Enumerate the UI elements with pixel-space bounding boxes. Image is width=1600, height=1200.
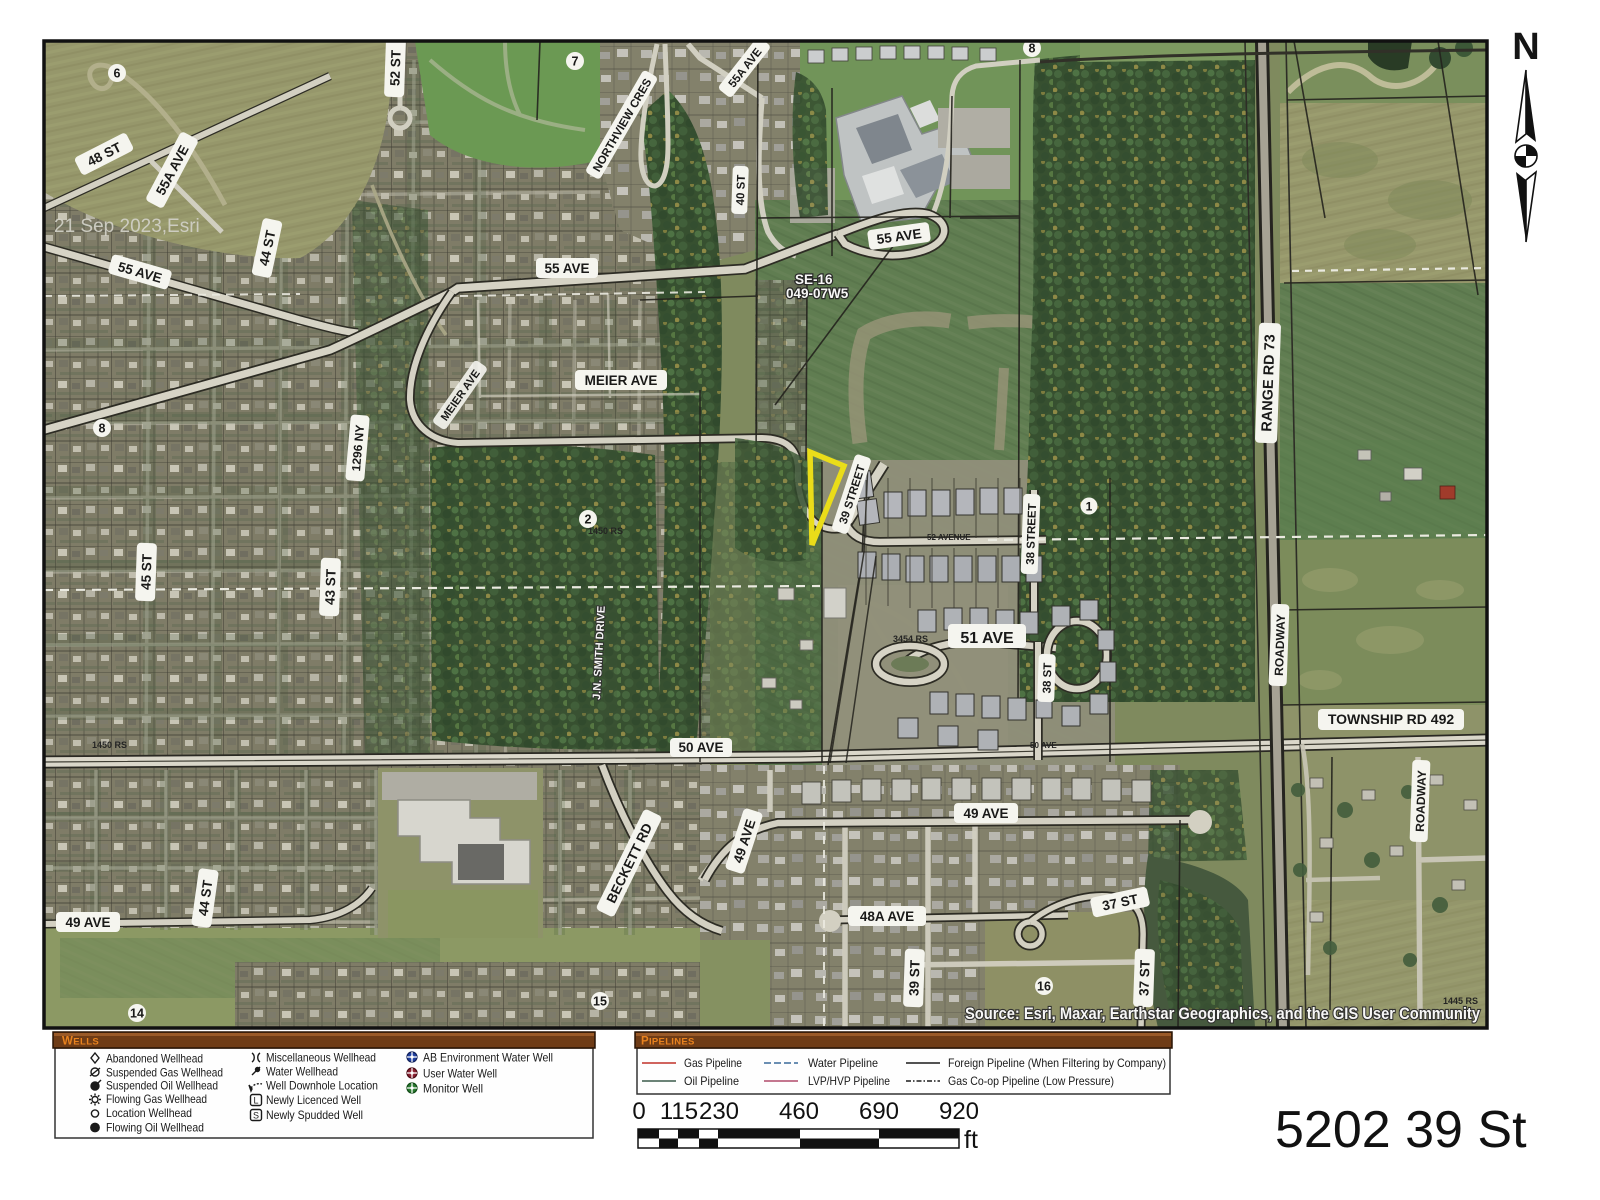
svg-text:Monitor Well: Monitor Well	[423, 1082, 483, 1096]
svg-text:Abandoned Wellhead: Abandoned Wellhead	[106, 1052, 203, 1066]
svg-text:Suspended Gas Wellhead: Suspended Gas Wellhead	[106, 1066, 223, 1080]
svg-text:230: 230	[699, 1098, 739, 1125]
svg-text:Location Wellhead: Location Wellhead	[106, 1106, 192, 1120]
svg-text:Flowing Gas Wellhead: Flowing Gas Wellhead	[106, 1092, 207, 1106]
svg-text:User Water Well: User Water Well	[423, 1067, 497, 1081]
svg-text:Water Pipeline: Water Pipeline	[808, 1056, 878, 1070]
svg-text:690: 690	[859, 1098, 899, 1125]
svg-text:Suspended Oil Wellhead: Suspended Oil Wellhead	[106, 1079, 218, 1093]
svg-text:5202 39 St: 5202 39 St	[1275, 1101, 1527, 1159]
svg-text:N: N	[1512, 26, 1539, 68]
svg-text:Gas Co-op Pipeline (Low Pressu: Gas Co-op Pipeline (Low Pressure)	[948, 1074, 1114, 1088]
svg-text:S: S	[253, 1111, 259, 1121]
svg-text:Oil Pipeline: Oil Pipeline	[684, 1074, 739, 1088]
svg-text:Gas Pipeline: Gas Pipeline	[684, 1056, 742, 1070]
svg-text:Water Wellhead: Water Wellhead	[266, 1065, 338, 1079]
svg-text:Newly Licenced Well: Newly Licenced Well	[266, 1093, 361, 1107]
svg-text:Flowing Oil Wellhead: Flowing Oil Wellhead	[106, 1121, 204, 1135]
svg-text:115: 115	[660, 1098, 698, 1125]
svg-text:920: 920	[939, 1098, 979, 1125]
svg-text:Newly Spudded Well: Newly Spudded Well	[266, 1108, 363, 1122]
svg-text:L: L	[253, 1096, 258, 1106]
svg-text:Miscellaneous Wellhead: Miscellaneous Wellhead	[266, 1051, 376, 1065]
svg-text:AB Environment Water Well: AB Environment Water Well	[423, 1051, 553, 1065]
svg-text:LVP/HVP Pipeline: LVP/HVP Pipeline	[808, 1074, 890, 1088]
svg-text:Well Downhole Location: Well Downhole Location	[266, 1079, 378, 1093]
svg-text:0: 0	[632, 1098, 645, 1125]
svg-text:PIPELINES: PIPELINES	[641, 1036, 695, 1048]
svg-text:ft: ft	[964, 1126, 978, 1154]
svg-text:WELLS: WELLS	[62, 1036, 99, 1048]
svg-text:Foreign Pipeline (When Filteri: Foreign Pipeline (When Filtering by Comp…	[948, 1056, 1166, 1070]
svg-text:460: 460	[779, 1098, 819, 1125]
